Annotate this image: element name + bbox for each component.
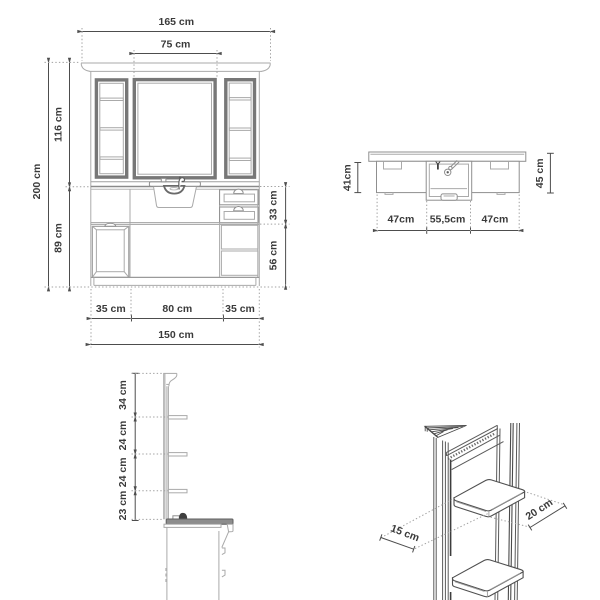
- svg-text:23 cm: 23 cm: [117, 491, 129, 521]
- svg-text:75 cm: 75 cm: [161, 39, 191, 51]
- svg-text:24 cm: 24 cm: [117, 457, 129, 487]
- svg-text:24 cm: 24 cm: [117, 421, 129, 451]
- svg-text:35 cm: 35 cm: [96, 303, 126, 315]
- svg-text:20 cm: 20 cm: [524, 497, 556, 523]
- svg-text:33 cm: 33 cm: [268, 190, 280, 220]
- svg-text:165 cm: 165 cm: [158, 16, 194, 28]
- svg-text:56 cm: 56 cm: [268, 241, 280, 271]
- svg-text:41cm: 41cm: [342, 164, 354, 191]
- svg-text:55,5cm: 55,5cm: [430, 214, 466, 226]
- svg-text:45 cm: 45 cm: [534, 158, 546, 188]
- svg-text:47cm: 47cm: [481, 214, 508, 226]
- svg-text:200 cm: 200 cm: [31, 164, 43, 200]
- svg-text:150 cm: 150 cm: [158, 329, 194, 341]
- svg-text:47cm: 47cm: [387, 214, 414, 226]
- svg-text:34 cm: 34 cm: [117, 380, 129, 410]
- svg-text:15 cm: 15 cm: [389, 522, 421, 544]
- svg-text:35 cm: 35 cm: [225, 303, 255, 315]
- svg-text:116 cm: 116 cm: [53, 107, 65, 142]
- svg-text:89 cm: 89 cm: [53, 223, 65, 253]
- svg-text:80 cm: 80 cm: [162, 303, 192, 315]
